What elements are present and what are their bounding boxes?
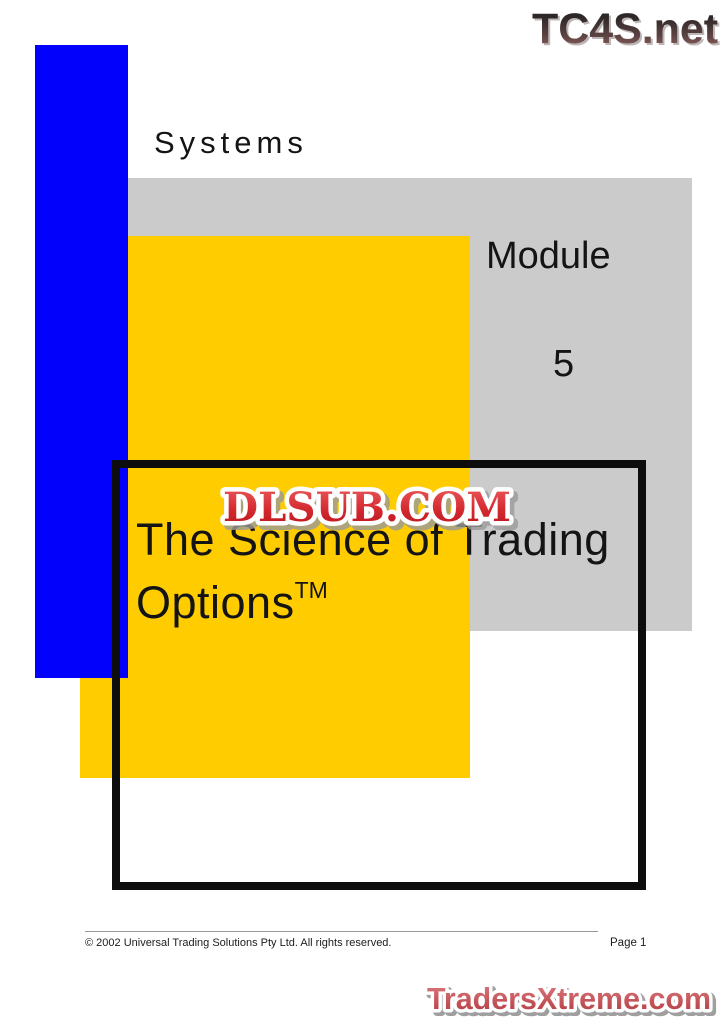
dlsub-watermark-text: DLSUB.COM xyxy=(223,484,511,531)
tc4s-logo-text: TC4S.net xyxy=(532,5,718,53)
footer-copyright: © 2002 Universal Trading Solutions Pty L… xyxy=(85,937,391,950)
tc4s-logo: TC4S.net TC4S.net xyxy=(528,2,724,56)
tradersxtreme-watermark-text: TradersXtreme.com xyxy=(427,981,711,1016)
systems-heading: Systems xyxy=(154,127,308,158)
document-page: { "colors": { "accent_blue": "#0202fc", … xyxy=(0,0,724,1024)
module-label: Module xyxy=(486,237,611,275)
footer-page-number: Page 1 xyxy=(610,937,646,951)
tradersxtreme-watermark: TradersXtreme.com TradersXtreme.com xyxy=(416,976,722,1024)
footer-divider xyxy=(85,931,598,932)
module-number: 5 xyxy=(553,345,574,383)
trademark-symbol: TM xyxy=(295,577,328,603)
title-line2: Options xyxy=(136,577,295,628)
dlsub-watermark: DLSUB.COM DLSUB.COM xyxy=(210,476,526,542)
